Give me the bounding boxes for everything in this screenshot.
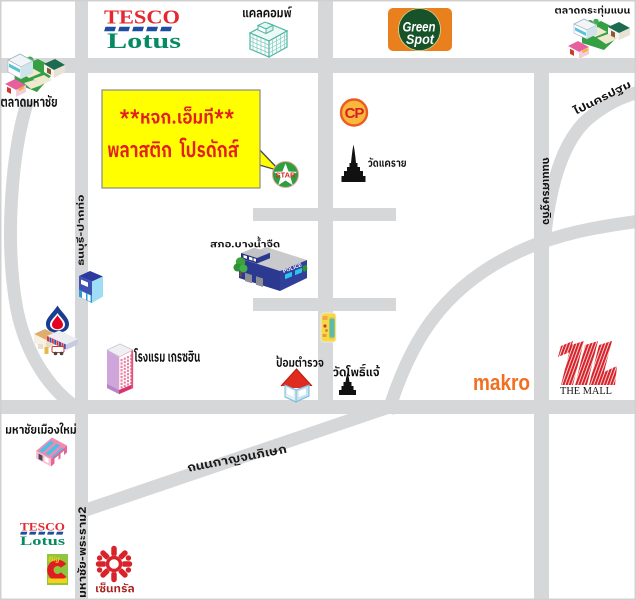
svg-text:Big: Big — [48, 557, 60, 564]
svg-text:makro: makro — [473, 370, 530, 395]
svg-text:TESCO: TESCO — [20, 522, 65, 534]
svg-text:Lotus: Lotus — [20, 533, 65, 548]
svg-text:Spot: Spot — [406, 31, 435, 47]
svg-text:CP: CP — [345, 105, 365, 122]
svg-text:TESCO: TESCO — [104, 8, 180, 29]
svg-text:Lotus: Lotus — [107, 28, 182, 53]
svg-text:STAR: STAR — [276, 172, 296, 179]
svg-text:THE MALL: THE MALL — [560, 386, 612, 397]
